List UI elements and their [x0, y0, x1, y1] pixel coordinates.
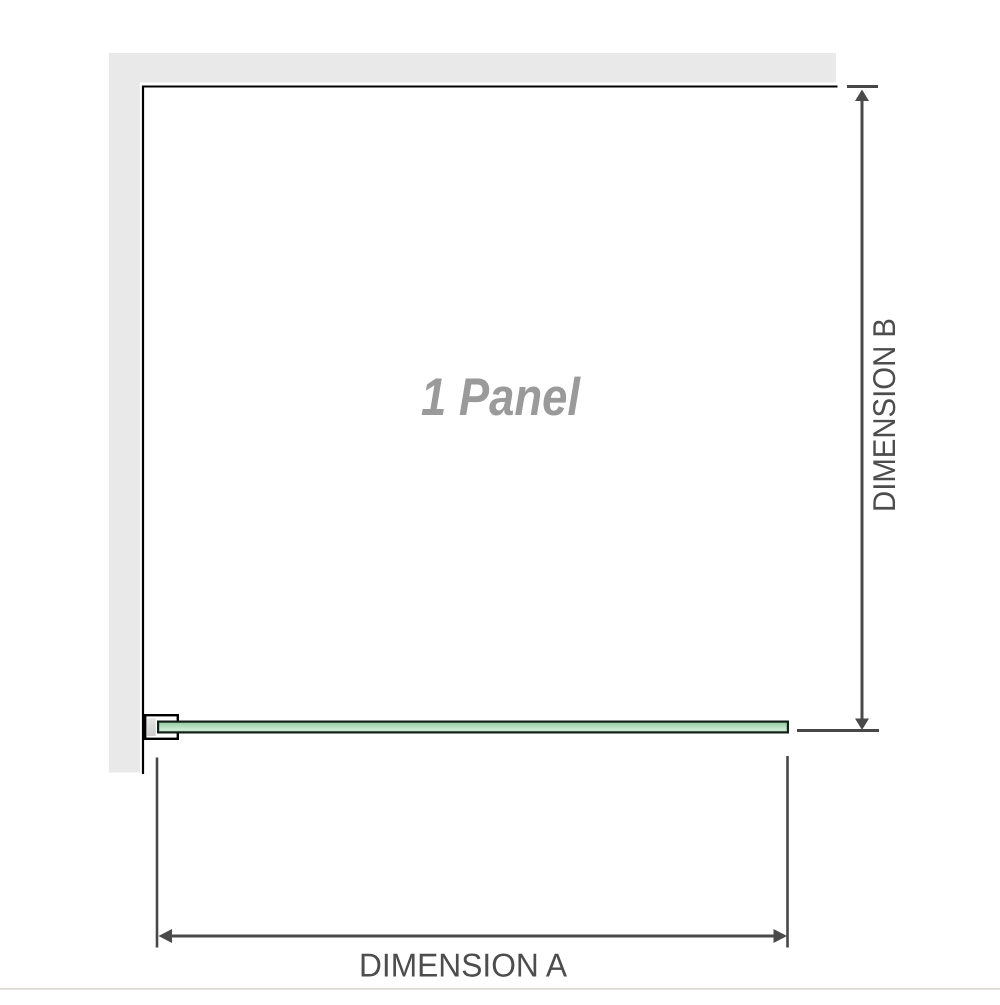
svg-text:1 Panel: 1 Panel	[421, 368, 581, 427]
svg-text:DIMENSION A: DIMENSION A	[359, 947, 567, 984]
svg-text:DIMENSION B: DIMENSION B	[866, 318, 902, 512]
